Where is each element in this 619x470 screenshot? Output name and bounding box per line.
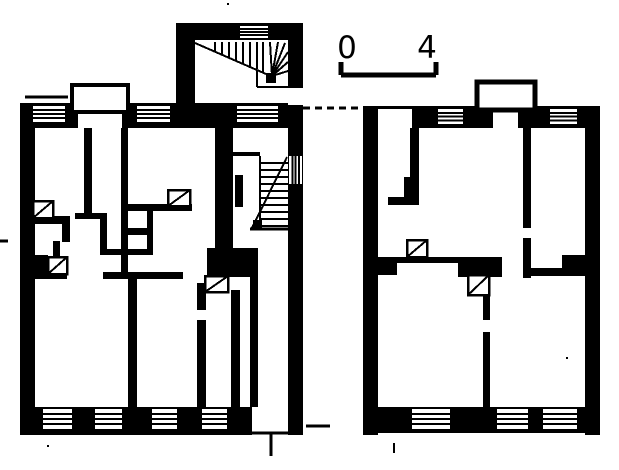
bay-window-outline [72,85,128,112]
scan-speck [566,357,568,359]
door-opening [252,407,288,435]
wall-segment [410,128,419,177]
wall-segment [33,255,48,272]
wall-segment [250,277,258,408]
scale-bar-end-label: 4 [417,30,437,66]
wall-segment [207,248,258,277]
wall-segment [176,23,303,40]
wall-segment [215,128,233,248]
wall-segment [523,128,531,228]
wall-segment [128,278,137,407]
stair-tread-line [270,42,272,76]
wall-segment [197,320,206,407]
scan-speck [227,3,229,5]
wall-segment [363,106,378,435]
wall-segment [288,23,303,435]
bay-window-outline [477,82,535,110]
wall-segment [404,177,419,199]
wall-segment [523,238,531,278]
wall-segment [103,272,183,279]
wall-segment [231,290,240,408]
wall-segment [53,241,60,257]
door-opening [378,109,412,128]
wall-segment [483,332,490,407]
wall-segment [483,293,490,320]
wall-segment [121,128,128,278]
floor-plan-drawing: 0 4 [0,0,619,470]
scale-bar-start-label: 0 [337,30,357,66]
door-opening [288,88,303,105]
wall-segment [100,249,153,255]
wall-segment [370,226,378,233]
wall-segment [388,197,419,205]
stair-tread-line [195,43,266,74]
wall-segment [378,257,397,275]
plan-geometry [0,3,600,456]
wall-segment [235,175,243,207]
wall-segment [20,103,35,435]
wall-segment [84,128,92,215]
scan-speck [47,445,49,447]
wall-segment [100,213,107,254]
wall-segment [147,207,153,254]
wall-segment [562,255,585,274]
wall-segment [62,216,70,242]
stair-tread-line [252,157,287,228]
wall-segment [585,106,600,435]
floor-plan-page: 0 4 [0,0,619,470]
